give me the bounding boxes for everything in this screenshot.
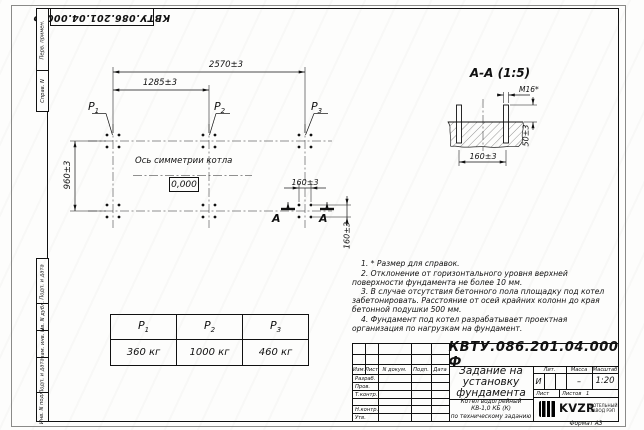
elevation-mark: 0,000	[169, 177, 199, 192]
drawing-object: Котел водогрейный КВ-1,0 КБ (К) по техни…	[449, 399, 533, 421]
col-list: Лист	[365, 367, 378, 373]
p-mark-leaders	[92, 114, 328, 136]
anchor-stud-right	[504, 105, 509, 143]
dim-bolt-spacing-y: 160±3	[343, 219, 352, 253]
dim-half-width: 1285±3	[128, 78, 192, 88]
sig-prov: Пров.	[355, 384, 370, 390]
sig-tkontr: Т.контр.	[355, 392, 377, 398]
section-letter-right: А	[319, 212, 328, 225]
title-block: КВТУ.086.201.04.000 Ф Задание на установ…	[352, 343, 618, 421]
corner-stamp: КВТУ.086.201.04.000 Ф	[50, 8, 154, 26]
note-1: 1. * Размер для справок.	[352, 260, 618, 269]
dim-stud-height: 50±3	[522, 118, 531, 154]
col-data: Дата	[431, 367, 449, 373]
dim-overall-width: 2570±3	[193, 60, 259, 70]
thread-size-label: М16*	[519, 85, 539, 94]
format-label: Формат А3	[556, 421, 616, 427]
note-3: 3. В случае отсутствия бетонного пола пл…	[352, 288, 618, 314]
drawing-title: Задание на установку фундамента	[449, 366, 533, 399]
loads-header-p2: P2	[177, 315, 243, 340]
dimension-lines	[75, 72, 533, 226]
loads-value-row: 360 кг 1000 кг 460 кг	[111, 340, 309, 366]
loads-header-row: P1 P2 P3	[111, 315, 309, 340]
dim-bolt-spacing-x: 160±3	[283, 178, 327, 187]
sig-utv: Утв.	[355, 415, 366, 421]
margin-box-inv-podl: Инв. N подл.	[36, 392, 49, 422]
lit-value: И	[533, 373, 544, 389]
anchor-stud-left	[457, 105, 462, 143]
col-ndocum: N докум.	[378, 367, 411, 373]
margin-box-podp-data-1: Подп. и дата	[36, 258, 49, 305]
sheet-label: Лист	[536, 391, 549, 397]
loads-header-p1: P1	[111, 315, 177, 340]
note-2: 2. Отклонение от горизонтального уровня …	[352, 270, 618, 288]
drawing-sheet: 2570±3 1285±3 960±3 160±3 160±3 P1 P2 P3…	[0, 0, 644, 430]
col-podp: Подп.	[411, 367, 431, 373]
document-number: КВТУ.086.201.04.000 Ф	[449, 344, 618, 366]
column-loads-table: P1 P2 P3 360 кг 1000 кг 460 кг	[110, 314, 309, 366]
company-tagline: КОТЕЛЬНЫЙ ЗАВОД РЭП	[590, 403, 617, 414]
technical-notes: 1. * Размер для справок. 2. Отклонение о…	[352, 260, 618, 334]
margin-box-sprav-n: Справ. N	[36, 70, 49, 112]
dim-depth: 960±3	[63, 159, 73, 191]
p1-load-mark: P1	[88, 100, 99, 115]
section-cut-marks	[281, 202, 334, 210]
sig-nkontr: Н.контр.	[355, 407, 378, 413]
boiler-symmetry-axis-label: Ось симметрии котла	[135, 156, 232, 166]
loads-value-p1: 360 кг	[111, 340, 177, 366]
section-letter-left: А	[272, 212, 281, 225]
margin-box-podp-data-2: Подп. и дата	[36, 357, 49, 394]
note-4: 4. Фундамент под котел разрабатывает про…	[352, 316, 618, 334]
dim-stud-spacing: 160±3	[461, 152, 505, 161]
loads-header-p3: P3	[243, 315, 309, 340]
section-concrete-pad	[448, 105, 523, 147]
sheets-label: Листов	[562, 391, 581, 397]
p3-load-mark: P3	[311, 100, 322, 115]
margin-box-vzam-inv: Взам. инв. N	[36, 330, 49, 359]
mass-value: –	[566, 373, 592, 389]
margin-box-perv-primen: Перв. примен.	[36, 8, 49, 72]
sig-razrab: Разраб.	[355, 376, 375, 382]
section-title: А-А (1:5)	[462, 66, 538, 80]
scale-value: 1:20	[592, 373, 618, 389]
company-logo-emblem	[539, 401, 556, 417]
sheets-value: 1	[586, 391, 589, 397]
loads-value-p3: 460 кг	[243, 340, 309, 366]
loads-value-p2: 1000 кг	[177, 340, 243, 366]
col-izm: Изм.	[353, 367, 365, 373]
p2-load-mark: P2	[214, 100, 225, 115]
